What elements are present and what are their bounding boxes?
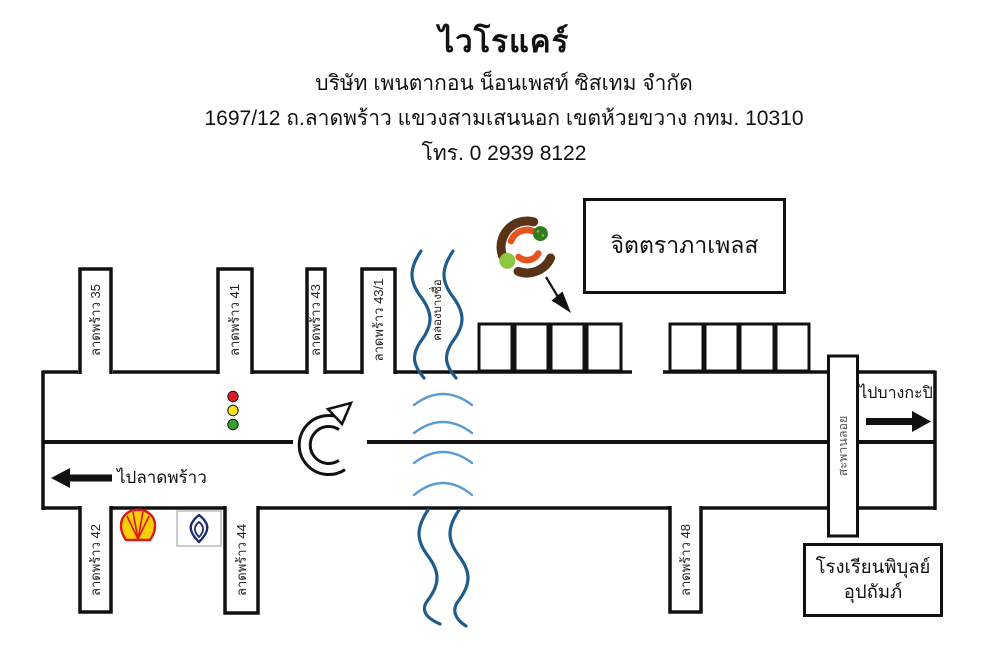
direction-label-to-ladprao: ไปลาดพร้าว xyxy=(117,464,207,491)
soi-label-ladprao-42: ลาดพร้าว 42 xyxy=(88,515,104,605)
building-box-label: จิตตราภาเพลส xyxy=(611,228,759,264)
soi-label-ladprao-48: ลาดพร้าว 48 xyxy=(678,515,694,605)
traffic-light-icon xyxy=(228,391,238,429)
school-box-label: โรงเรียนพิบุลย์ อุปถัมภ์ xyxy=(816,555,931,605)
arrow-right-to-bangkapi xyxy=(866,411,931,432)
location-pointer-arrow xyxy=(546,277,571,313)
bangchak-gas-station-icon xyxy=(177,511,221,546)
soi-label-ladprao-41: ลาดพร้าว 41 xyxy=(227,275,243,365)
bridge-arcs xyxy=(414,394,472,495)
shop-row-blocks xyxy=(479,324,809,371)
arrow-left-to-ladprao xyxy=(51,468,112,488)
shell-gas-station-icon xyxy=(121,510,155,540)
soi-label-ladprao-43-1: ลาดพร้าว 43/1 xyxy=(371,275,387,365)
vairocare-company-logo xyxy=(499,221,550,273)
soi-label-ladprao-44: ลาดพร้าว 44 xyxy=(234,515,250,605)
soi-label-ladprao-43: ลาดพร้าว 43 xyxy=(308,275,324,365)
building-box-jittrapha-place: จิตตราภาเพลส xyxy=(583,198,786,294)
canal-label: คลองบางซื่อ xyxy=(430,270,446,350)
u-turn-arrow-icon xyxy=(293,403,367,480)
school-box-pibul-uppatham: โรงเรียนพิบุลย์ อุปถัมภ์ xyxy=(803,543,943,617)
overpass-label: สะพานลอย xyxy=(835,404,851,488)
direction-label-to-bangkapi: ไปบางกะปิ xyxy=(856,381,936,406)
soi-label-ladprao-35: ลาดพร้าว 35 xyxy=(88,275,104,365)
